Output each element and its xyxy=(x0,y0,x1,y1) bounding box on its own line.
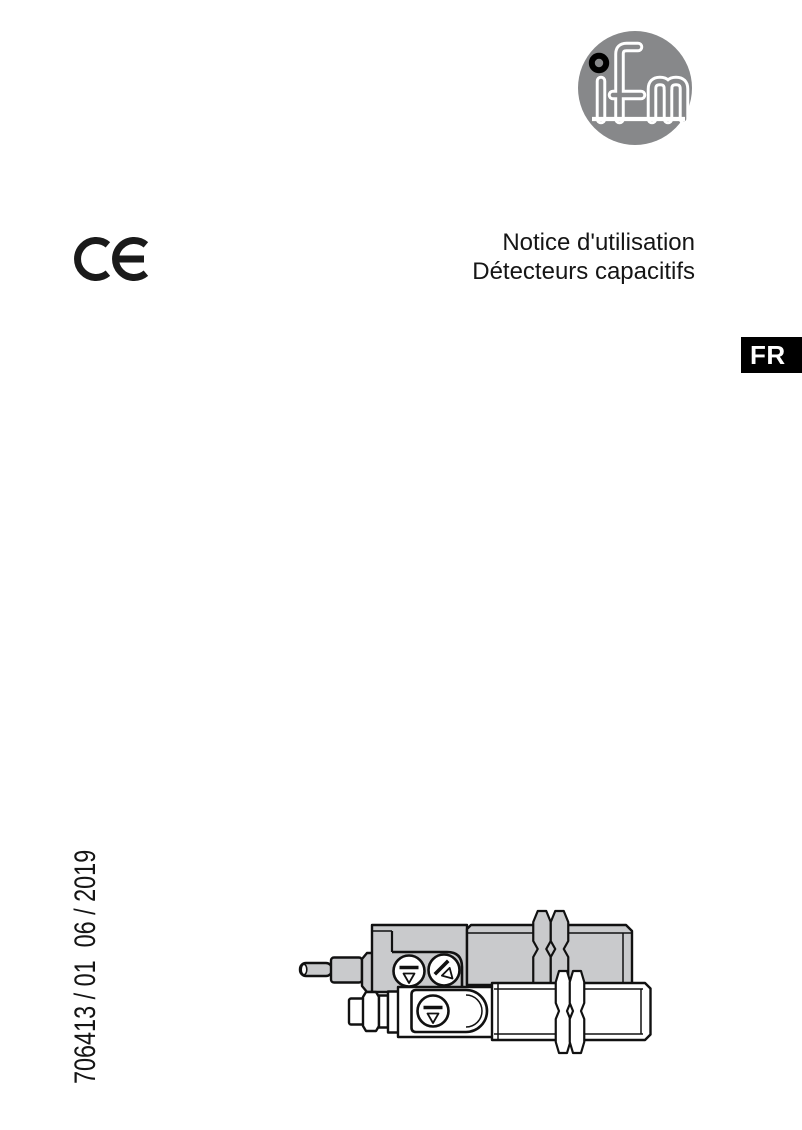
m12-connector-ring xyxy=(379,996,388,1028)
document-number: 706413 / 01 06 / 2019 xyxy=(71,850,101,1084)
m12-connector-tip xyxy=(349,999,364,1025)
ce-letter-c xyxy=(78,241,108,278)
cable-boot xyxy=(331,958,362,983)
bottom-hex-nut-1 xyxy=(556,971,571,1053)
m12-connector-nut xyxy=(363,992,379,1031)
title-line-1: Notice d'utilisation xyxy=(472,229,695,258)
cable-tip xyxy=(301,964,307,974)
title-line-2: Détecteurs capacitifs xyxy=(472,258,695,287)
ce-mark xyxy=(65,228,160,292)
language-badge-label: FR xyxy=(750,340,786,371)
bottom-hex-nut-2 xyxy=(570,971,585,1053)
adjustment-screw-2 xyxy=(429,955,460,986)
sensor-illustration xyxy=(290,890,660,1060)
language-badge: FR xyxy=(741,337,802,373)
ifm-logo xyxy=(575,28,695,148)
document-title: Notice d'utilisation Détecteurs capaciti… xyxy=(472,229,695,286)
